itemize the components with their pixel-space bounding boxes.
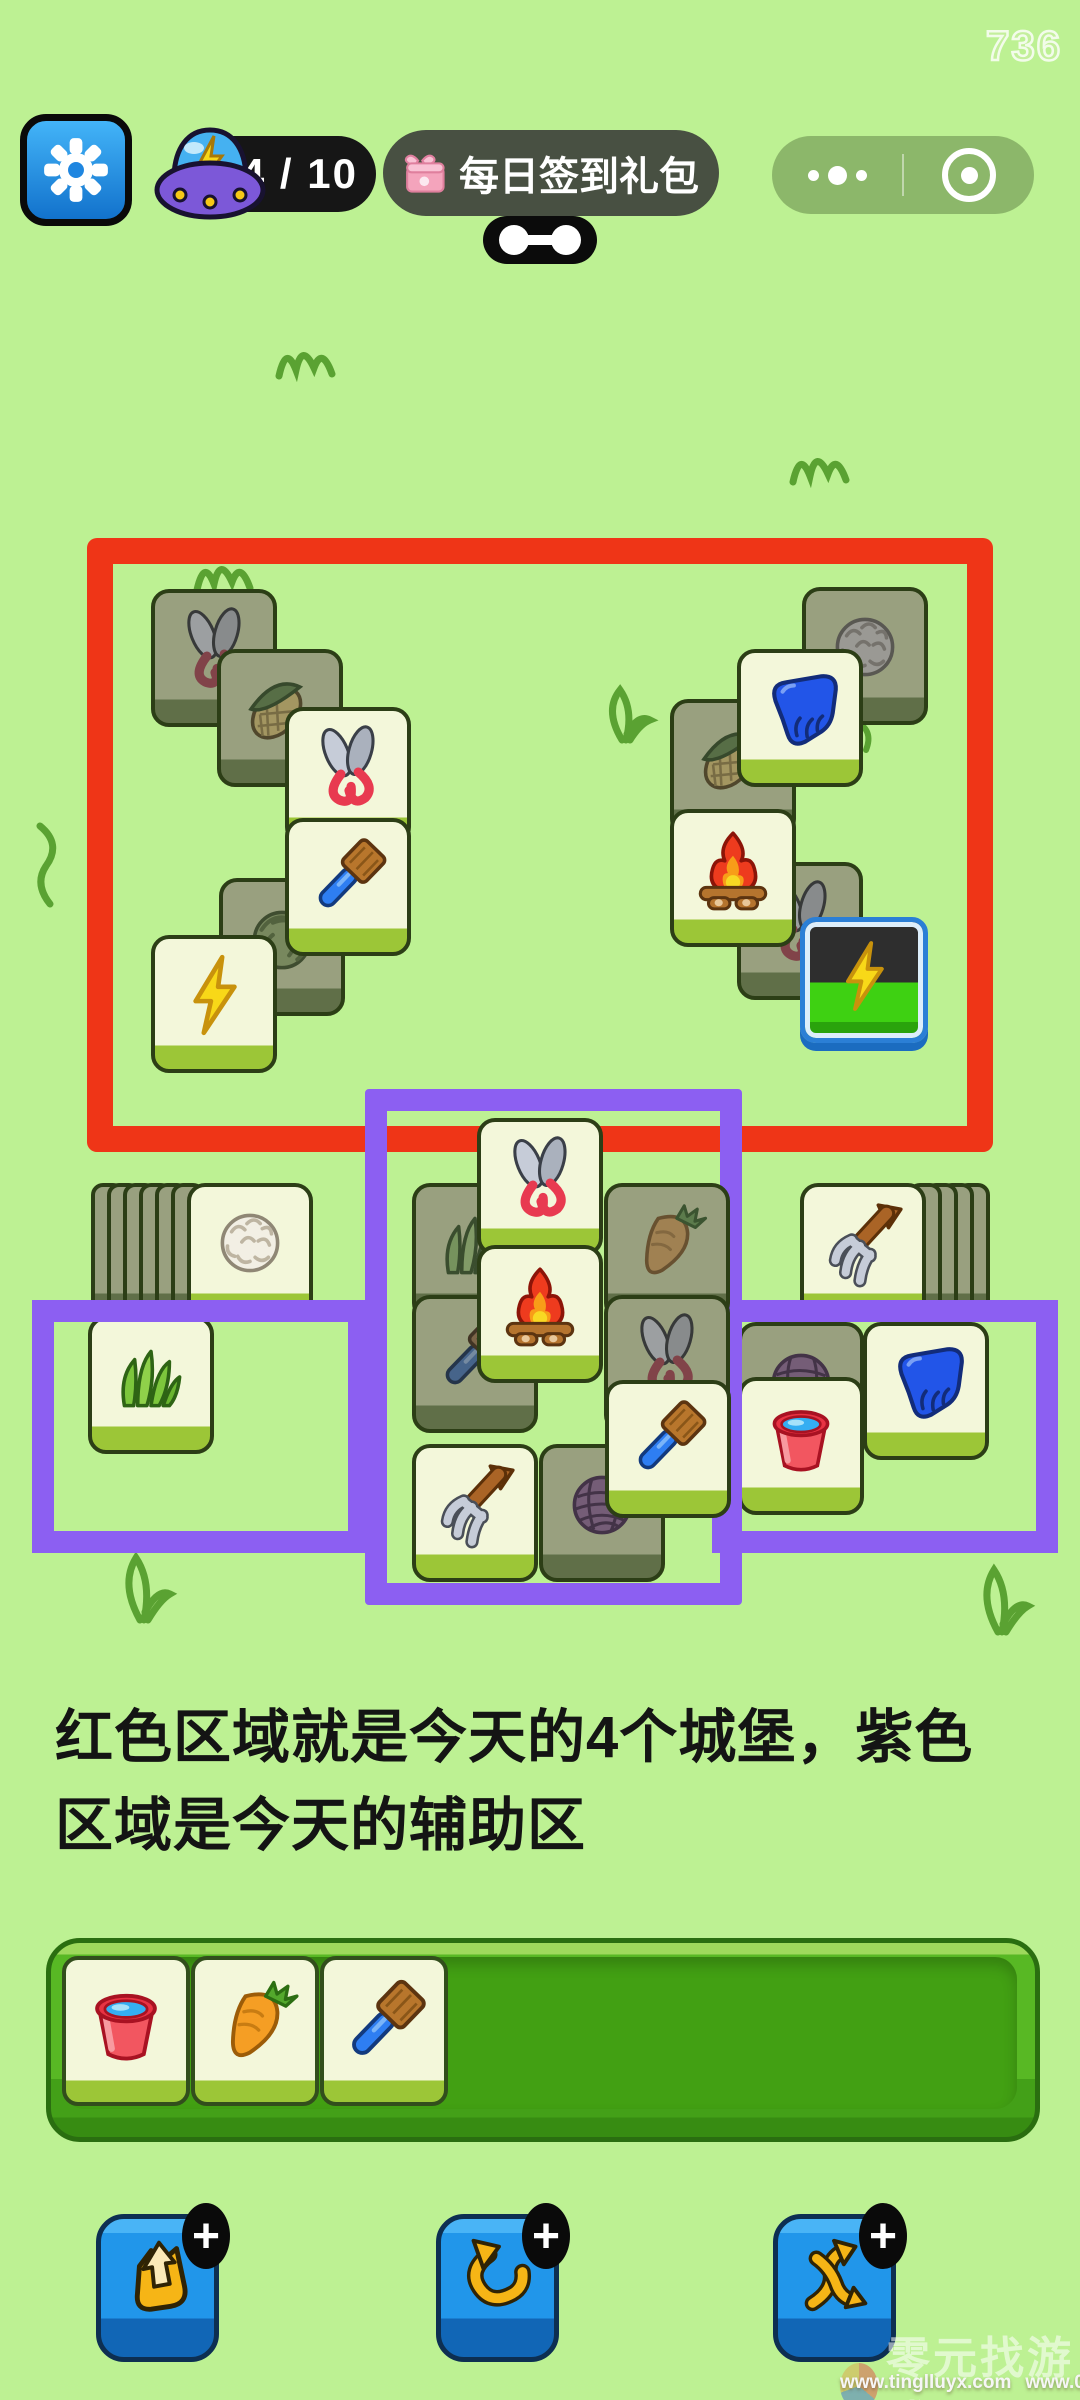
brush-icon — [622, 1394, 714, 1486]
grass-doodle — [30, 820, 70, 910]
settings-button[interactable] — [20, 114, 132, 226]
daily-signin-button[interactable]: 每日签到礼包 — [383, 130, 719, 216]
brush-icon — [334, 1973, 434, 2073]
watermark-urls: www.tinglluyx.com www.06zyx.com — [840, 2372, 1076, 2394]
caption-line-2: 区域是今天的辅助区 — [55, 1782, 1045, 1870]
more-menu-button[interactable] — [772, 166, 902, 185]
grass-doodle — [600, 682, 660, 746]
watermark-url-left: www.tinglluyx.com — [840, 2372, 1011, 2394]
glove-icon — [754, 663, 846, 755]
undo-button[interactable]: + — [436, 2214, 559, 2362]
helper-zone-outline-left — [32, 1300, 370, 1553]
tray-tile-brush — [320, 1956, 448, 2106]
move-out-button[interactable]: + — [96, 2214, 219, 2362]
shears-icon — [302, 721, 394, 813]
caption-line-1: 红色区域就是今天的4个城堡，紫色 — [55, 1694, 1045, 1782]
add-badge[interactable]: + — [522, 2203, 570, 2269]
tile-brush[interactable] — [605, 1380, 731, 1518]
carrot-icon — [205, 1973, 305, 2073]
tile-lightning[interactable] — [800, 917, 928, 1043]
game-screen: 736 4 / 10 — [0, 0, 1080, 2400]
tile-lightning[interactable] — [151, 935, 277, 1073]
score-overlay: 736 — [986, 22, 1062, 70]
tray-tile-bucket — [62, 1956, 190, 2106]
add-badge[interactable]: + — [859, 2203, 907, 2269]
daily-signin-label: 每日签到礼包 — [459, 144, 699, 202]
watermark-url-right: www.06zyx.com — [1025, 2372, 1080, 2394]
gift-icon — [403, 145, 447, 201]
more-dots-icon — [808, 166, 867, 185]
mini-program-capsule — [772, 136, 1034, 214]
lightning-icon — [824, 936, 904, 1016]
tile-shears[interactable] — [477, 1118, 603, 1256]
grass-doodle — [786, 440, 856, 488]
pitchfork-icon — [817, 1197, 909, 1289]
tile-campfire[interactable] — [670, 809, 796, 947]
gear-icon — [42, 136, 110, 204]
grass-doodle — [272, 334, 342, 382]
close-minimize-button[interactable] — [904, 148, 1034, 202]
bucket-icon — [76, 1973, 176, 2073]
tile-campfire[interactable] — [477, 1245, 603, 1383]
pitchfork-icon — [429, 1458, 521, 1550]
lightning-icon — [168, 949, 260, 1041]
add-badge[interactable]: + — [182, 2203, 230, 2269]
tray-tile-carrot — [191, 1956, 319, 2106]
campfire-icon — [687, 823, 779, 915]
helper-zone-outline-right — [712, 1300, 1058, 1553]
cotton-icon — [204, 1197, 296, 1289]
tile-glove[interactable] — [737, 649, 863, 787]
campfire-icon — [494, 1259, 586, 1351]
shears-icon — [494, 1132, 586, 1224]
circle-target-icon — [942, 148, 996, 202]
grass-doodle — [976, 1560, 1036, 1640]
caption: 红色区域就是今天的4个城堡，紫色 区域是今天的辅助区 — [55, 1694, 1045, 1870]
tile-brush[interactable] — [285, 818, 411, 956]
drag-handle[interactable] — [483, 216, 597, 264]
grass-doodle — [118, 1548, 178, 1628]
brush-icon — [302, 832, 394, 924]
tile-pitchfork[interactable] — [412, 1444, 538, 1582]
ufo-icon — [150, 122, 270, 231]
carrot-icon — [621, 1197, 713, 1289]
link-icon — [499, 225, 581, 255]
